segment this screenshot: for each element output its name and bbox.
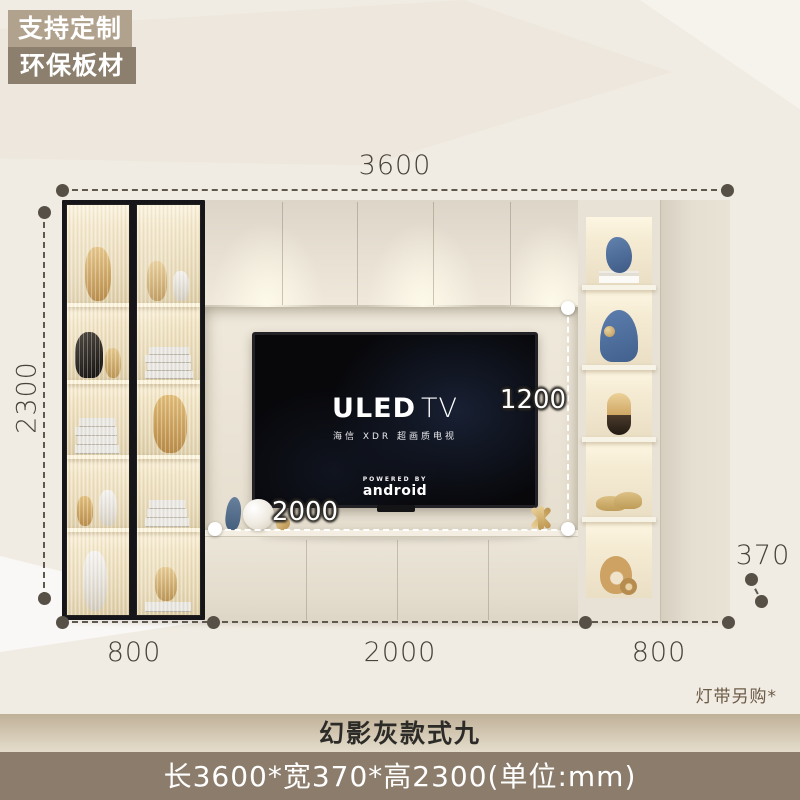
shelf-cell — [586, 217, 652, 285]
shelf-cell — [586, 290, 652, 365]
dimension-dot — [56, 616, 69, 629]
blue-head-sculpture — [606, 237, 632, 273]
light-strip-note: 灯带另购* — [696, 682, 778, 707]
tv-console-cabinet — [205, 530, 578, 622]
tv-tagline: 海信 XDR 超画质电视 — [255, 429, 535, 442]
dimension-label-total-width: 3600 — [330, 150, 460, 181]
tv-screen: ULEDTV 海信 XDR 超画质电视 POWERED BY android — [252, 332, 538, 508]
glass-display-cabinet — [62, 200, 205, 620]
shelf-cell — [586, 522, 652, 598]
door-seam — [357, 202, 358, 305]
dimension-dot-white — [561, 301, 575, 315]
dimension-line-niche-width — [215, 529, 567, 531]
door-seam — [433, 202, 434, 305]
dimension-line-sections — [62, 621, 728, 623]
dimension-dot — [755, 595, 768, 608]
dimension-line-total-height — [43, 212, 45, 598]
dimension-label-niche-width: 2000 — [262, 497, 348, 527]
dimension-dot — [579, 616, 592, 629]
gold-horse-figurine — [614, 492, 642, 509]
dimension-dot-white — [561, 522, 575, 536]
door-seam — [488, 540, 489, 620]
dimension-dot — [207, 616, 220, 629]
gold-capsule-vase — [607, 393, 631, 435]
style-title-band: 幻影灰款式九 — [0, 714, 800, 752]
glass-door-right — [136, 204, 201, 616]
dimension-label-total-height: 2300 — [12, 348, 43, 448]
style-title: 幻影灰款式九 — [0, 714, 800, 752]
open-shelf-column — [578, 200, 660, 622]
door-seam — [397, 540, 398, 620]
dimension-line-niche-height — [567, 307, 569, 529]
spotlight-glow — [358, 210, 488, 307]
dimension-line-total-width — [62, 189, 727, 191]
dimension-label-middle-width: 2000 — [330, 637, 470, 668]
dimension-label-left-width: 800 — [84, 637, 184, 668]
dimension-dot — [721, 184, 734, 197]
spec-bar: 长3600*宽370*高2300(单位:mm) — [0, 752, 800, 800]
dimension-dot — [38, 206, 51, 219]
shelf-cell — [586, 442, 652, 517]
spotlight-glow — [202, 210, 332, 307]
dimension-dot-white — [208, 522, 222, 536]
badge-customization: 支持定制 — [8, 10, 132, 47]
tv-stand — [377, 505, 415, 512]
dimension-label-depth: 370 — [723, 540, 800, 571]
upper-cabinet-row — [205, 200, 578, 307]
dimension-label-right-width: 800 — [609, 637, 709, 668]
gold-jack-ornament — [528, 504, 554, 532]
powered-by-label: POWERED BY — [255, 476, 535, 483]
dimension-dot — [745, 573, 758, 586]
door-seam — [510, 202, 511, 305]
product-image-page: 支持定制 环保板材 — [0, 0, 800, 800]
door-seam — [282, 202, 283, 305]
door-seam — [306, 540, 307, 620]
right-side-panel — [660, 200, 730, 622]
dimension-dot — [722, 616, 735, 629]
badge-eco-material: 环保板材 — [8, 47, 136, 84]
dimension-dot — [56, 184, 69, 197]
shelf-cell — [586, 370, 652, 437]
console-top-surface — [205, 530, 578, 537]
glass-door-left — [66, 204, 130, 616]
dimension-label-niche-height: 1200 — [493, 385, 573, 415]
spec-text: 长3600*宽370*高2300(单位:mm) — [0, 752, 800, 800]
dimension-dot — [38, 592, 51, 605]
